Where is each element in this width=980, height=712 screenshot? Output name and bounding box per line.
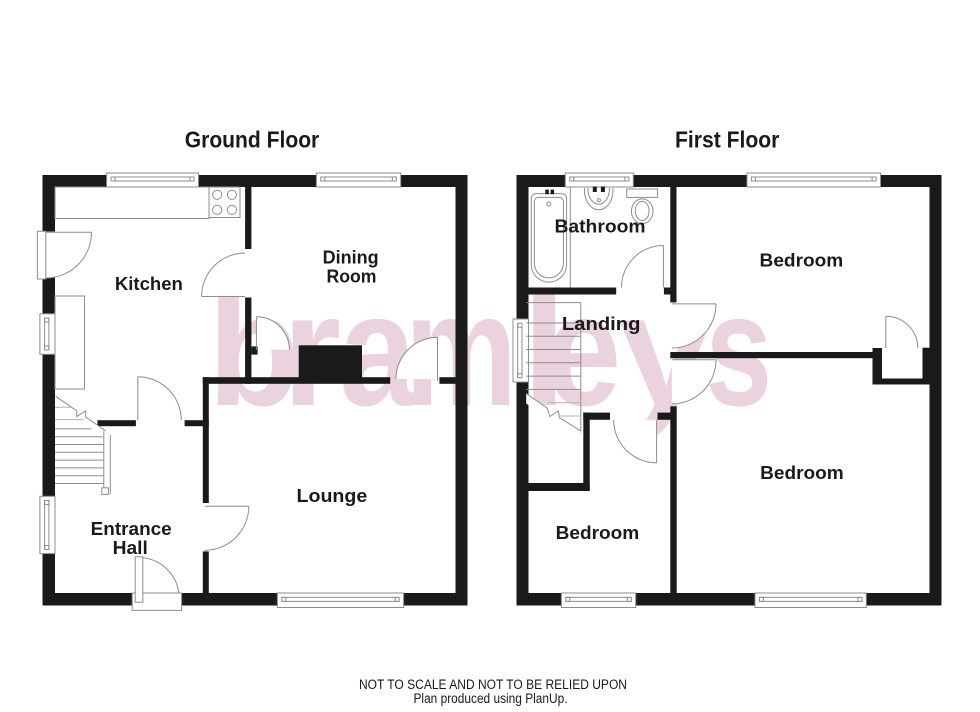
svg-text:Bedroom: Bedroom — [556, 523, 640, 543]
svg-text:First Floor: First Floor — [675, 127, 779, 153]
svg-text:Dining: Dining — [323, 248, 379, 268]
svg-text:Kitchen: Kitchen — [115, 274, 183, 294]
svg-text:Room: Room — [327, 267, 377, 287]
svg-text:Bedroom: Bedroom — [760, 463, 844, 483]
svg-text:Bedroom: Bedroom — [760, 250, 844, 270]
svg-text:Ground Floor: Ground Floor — [185, 127, 320, 153]
svg-text:Bathroom: Bathroom — [555, 216, 646, 236]
svg-text:Plan produced using PlanUp.: Plan produced using PlanUp. — [414, 691, 568, 706]
svg-text:NOT TO SCALE AND NOT TO BE REL: NOT TO SCALE AND NOT TO BE RELIED UPON — [359, 677, 627, 692]
svg-text:s: s — [706, 260, 773, 439]
svg-text:Landing: Landing — [562, 314, 641, 334]
svg-text:Lounge: Lounge — [297, 486, 368, 506]
svg-text:Entrance: Entrance — [91, 519, 172, 539]
svg-text:Hall: Hall — [113, 538, 148, 558]
